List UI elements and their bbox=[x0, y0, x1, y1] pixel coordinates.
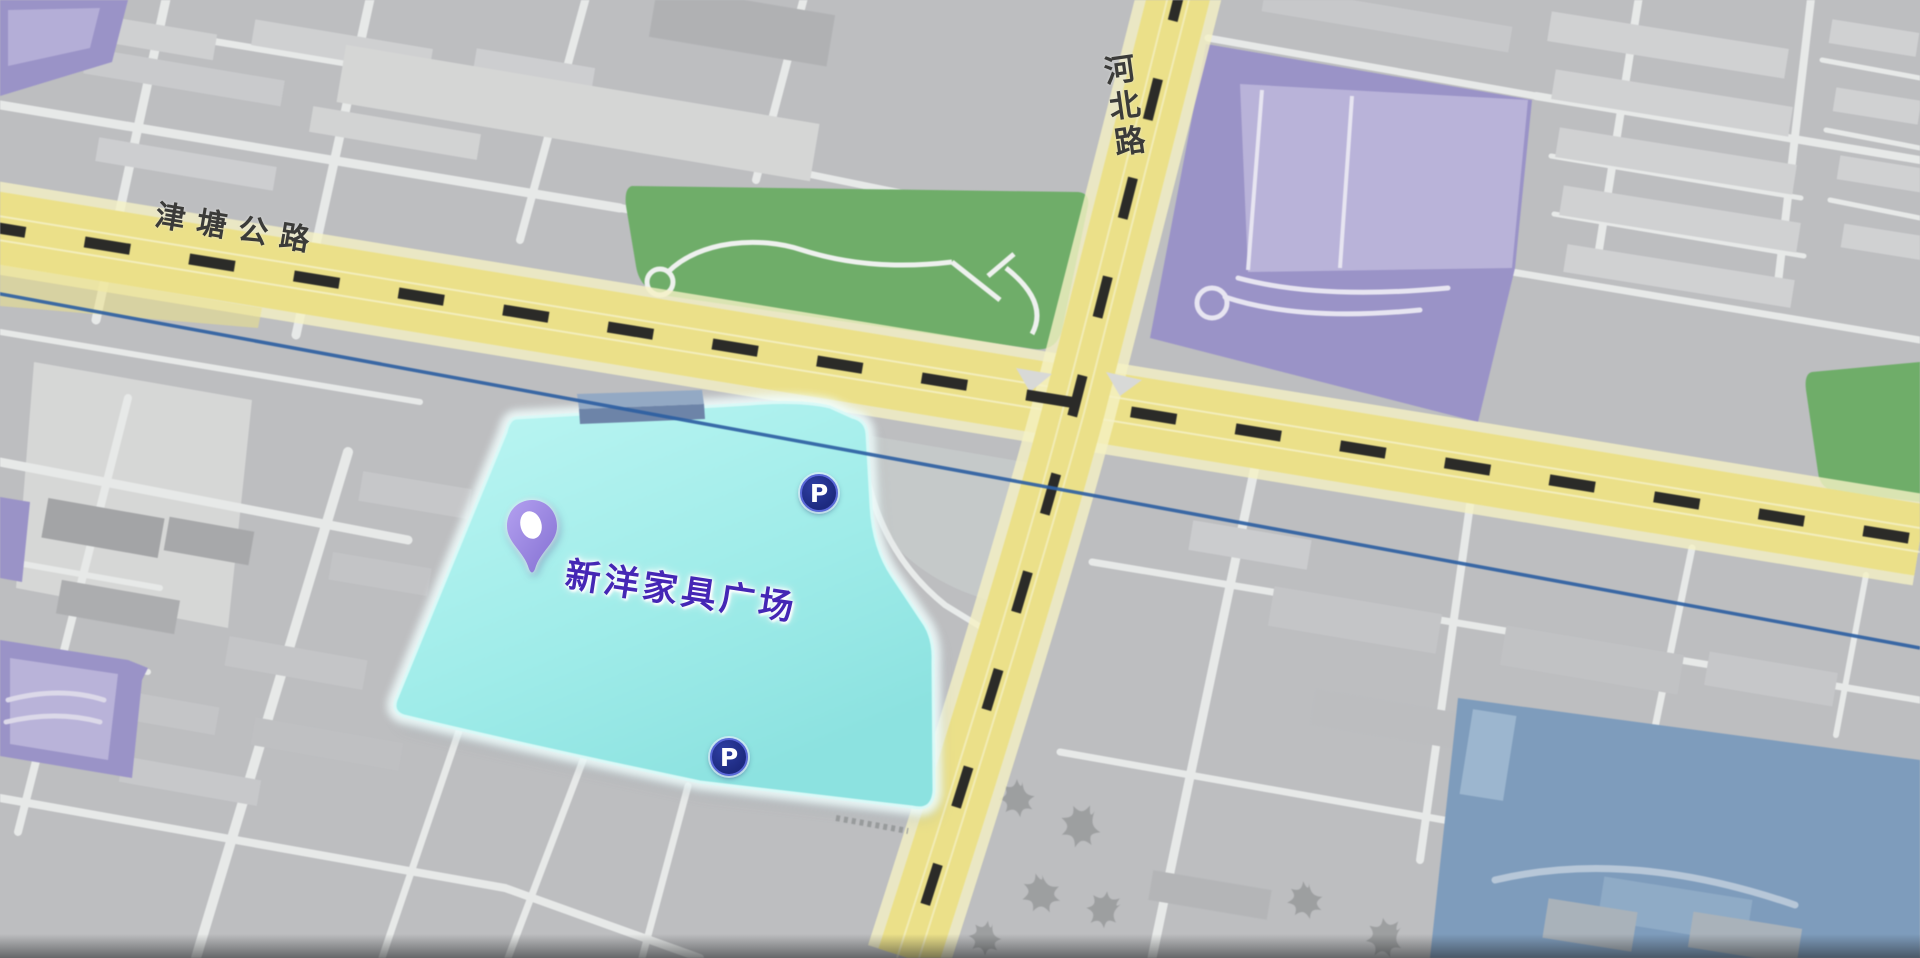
map-render bbox=[0, 0, 1920, 958]
parking-icon[interactable]: P bbox=[710, 738, 748, 776]
parking-icon[interactable]: P bbox=[800, 474, 838, 512]
video-bottom-vignette bbox=[0, 934, 1920, 958]
location-pin-icon[interactable] bbox=[504, 498, 560, 580]
map-canvas[interactable]: 津塘公路 河北路 新洋家具广场 P P bbox=[0, 0, 1920, 958]
steel-blue-building bbox=[1430, 698, 1920, 958]
